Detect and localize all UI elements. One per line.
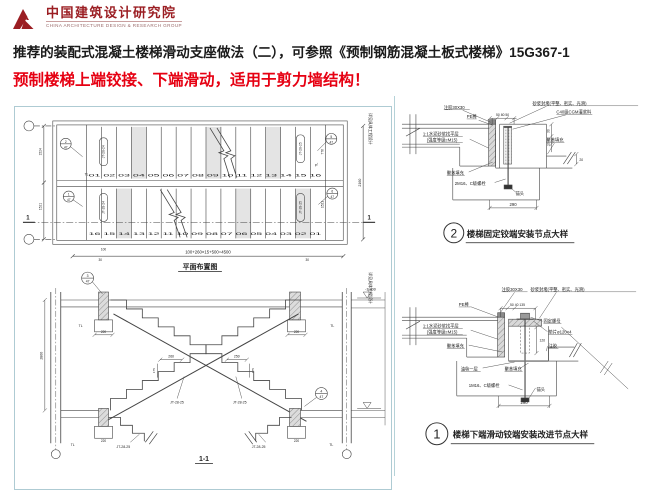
svg-text:100: 100 [101,247,107,251]
label-leveling-1: 1:1水泥砂浆找平层 [423,131,460,138]
svg-text:50 80 50: 50 80 50 [496,113,509,117]
svg-text:47: 47 [86,280,90,284]
label-pe-rod: PE棒 [467,113,478,120]
section-height-dim: 2800 [39,352,43,360]
svg-text:47: 47 [67,198,71,202]
plan-side-note: 详见具体工程设计 [368,113,373,145]
svg-text:TL: TL [329,443,333,447]
section-view [43,272,385,459]
label-poly-left: 聚苯填充 [447,170,465,177]
flight-code: JT-28-25 [170,400,184,404]
svg-text:JT-28-24: JT-28-24 [102,201,106,214]
label-washer: 垫片ø120×4 [548,329,572,336]
svg-text:1521: 1521 [38,203,42,210]
label-anchor: 锚头 [536,386,545,393]
section-title: 1-1 [199,456,209,463]
detail1-number: 1 [433,427,440,442]
svg-text:47: 47 [64,145,68,149]
label-glue: 注胶30X30 [444,104,465,111]
svg-text:TL: TL [79,324,83,328]
svg-text:JT-28-25: JT-28-25 [299,142,303,155]
svg-text:30: 30 [305,258,309,262]
detail1-caption-text: 楼梯下端滑动铰端安装改进节点大样 [453,430,589,440]
label-leveling-2: (强度等级≥M15) [427,137,458,144]
plan-step-numbers-bottom: 16 15 14 13 12 11 10 09 08 07 06 05 04 0… [89,232,322,236]
svg-text:47: 47 [319,395,323,399]
slide-title: 推荐的装配式混凝土楼梯滑动支座做法（二），可参照《预制钢筋混凝土板式楼梯》15G… [13,41,661,61]
slide-subtitle-note: 预制楼梯上端铰接、下端滑动，适用于剪力墙结构！ [13,68,653,90]
label-glue: 注胶30X30 [502,286,523,293]
svg-text:30: 30 [99,258,103,262]
label-glue-2: 注胶 [548,343,557,350]
plan-section-mark-left: 1 [26,215,30,221]
svg-text:175: 175 [251,368,255,373]
svg-text:220: 220 [101,439,107,443]
svg-text:2: 2 [65,140,67,144]
plan-section-panel: 01 02 03 04 05 06 07 08 09 10 11 12 13 1… [14,106,392,490]
svg-text:260: 260 [168,355,174,359]
svg-text:120: 120 [539,339,545,343]
plan-dim-right: 2160 [358,179,362,187]
detail2-caption-text: 楼梯固定铰端安装节点大样 [467,229,569,239]
svg-text:4: 4 [320,389,322,393]
svg-text:1524: 1524 [38,148,42,155]
label-fixing-nut: 固定螺母 [543,318,561,325]
section-texts: 2800 TL TL 220 220 260 250 175 175 JT-28… [39,274,375,463]
detail2-number: 2 [450,226,457,240]
svg-text:175: 175 [152,368,156,373]
detail-fixed-hinge: 注胶30X30 PE棒 砂浆封堵(平整、密实、光滑) C40级CGM灌浆料 1:… [397,96,666,263]
label-leveling-1: 1:1水泥砂浆找平层 [423,323,460,330]
plan-bottom-dim: 100+260×15+500=4500 [185,250,231,255]
svg-text:3: 3 [87,274,89,278]
label-pe-rod: PE棒 [459,301,470,308]
label-cgm-grout: C40级CGM灌浆料 [556,109,592,116]
detail1-caption: 1 楼梯下端滑动铰端安装改进节点大样 [426,423,594,445]
label-leveling-2: (强度等级≥M15) [427,329,458,336]
detail-sliding-hinge: 注胶30X30 砂浆封堵(平整、密实、光滑) PE棒 1:1水泥砂浆找平层 (强… [397,277,666,467]
plan-view [23,121,375,258]
svg-text:220: 220 [294,439,300,443]
svg-text:30: 30 [546,129,550,133]
label-felt: 油毡一层 [461,366,479,373]
plan-step-numbers-top: 01 02 03 04 05 06 07 08 09 10 11 12 13 1… [89,174,322,178]
detail1-geometry [402,292,636,408]
svg-text:47: 47 [330,140,334,144]
svg-text:JT-28-25: JT-28-25 [116,445,130,449]
label-anchor: 锚头 [516,190,525,197]
svg-text:20: 20 [579,158,583,162]
svg-text:50 40 135: 50 40 135 [510,303,525,307]
plan-texts: 01 02 03 04 05 06 07 08 09 10 11 12 13 1… [26,113,373,304]
svg-text:6: 6 [331,190,333,194]
cadg-logo: 中国建筑设计研究院 CHINA ARCHITECTURE DESIGN & RE… [10,6,182,32]
detail1-bottom-dim: 290 [520,400,528,405]
svg-text:5: 5 [330,135,332,139]
label-poly-mid: 聚苯填充 [505,366,523,373]
svg-text:47: 47 [331,195,335,199]
detail2-caption: 2 楼梯固定铰端安装节点大样 [444,223,575,243]
svg-text:220: 220 [101,330,107,334]
svg-text:1: 1 [68,193,70,197]
label-bolt: 1M16、C级螺栓 [469,382,501,389]
svg-text:250: 250 [234,355,240,359]
label-poly-left: 聚苯填充 [447,343,465,350]
svg-text:TL: TL [330,324,334,328]
svg-text:JT-28-25: JT-28-25 [299,201,303,214]
slide: { "logo": { "cn": "中国建筑设计研究院", "en": "CH… [0,0,666,498]
plan-beam-label: TL [85,173,89,177]
svg-text:JT-28-25: JT-28-25 [252,445,266,449]
logo-chinese-name: 中国建筑设计研究院 [46,6,182,20]
svg-text:TL: TL [314,163,318,167]
detail-drawings-column: 注胶30X30 PE棒 砂浆封堵(平整、密实、光滑) C40级CGM灌浆料 1:… [394,96,666,476]
svg-text:220: 220 [294,330,300,334]
plan-title: 平面布置图 [183,262,218,271]
label-mortar-seal: 砂浆封堵(平整、密实、光滑) [531,286,586,293]
svg-text:10: 10 [546,142,550,146]
plan-section-mark-right: 1 [367,215,371,221]
svg-text:776: 776 [320,149,324,155]
svg-text:TL: TL [71,443,75,447]
detail2-bottom-dim: 290 [510,202,518,207]
svg-text:JT-28-25: JT-28-25 [233,400,247,404]
plan-and-section-drawing: 01 02 03 04 05 06 07 08 09 10 11 12 13 1… [15,107,391,489]
svg-text:JT-28-24: JT-28-24 [102,145,106,158]
cadg-logo-icon [10,6,40,32]
elevation-label: -1.800 [365,288,376,292]
svg-text:1521: 1521 [320,201,324,208]
label-bolt: 2M16、C级螺栓 [455,180,487,187]
logo-english-name: CHINA ARCHITECTURE DESIGN & RESEARCH GRO… [46,21,182,28]
label-mortar-seal: 砂浆封堵(平整、密实、光滑) [532,100,587,107]
